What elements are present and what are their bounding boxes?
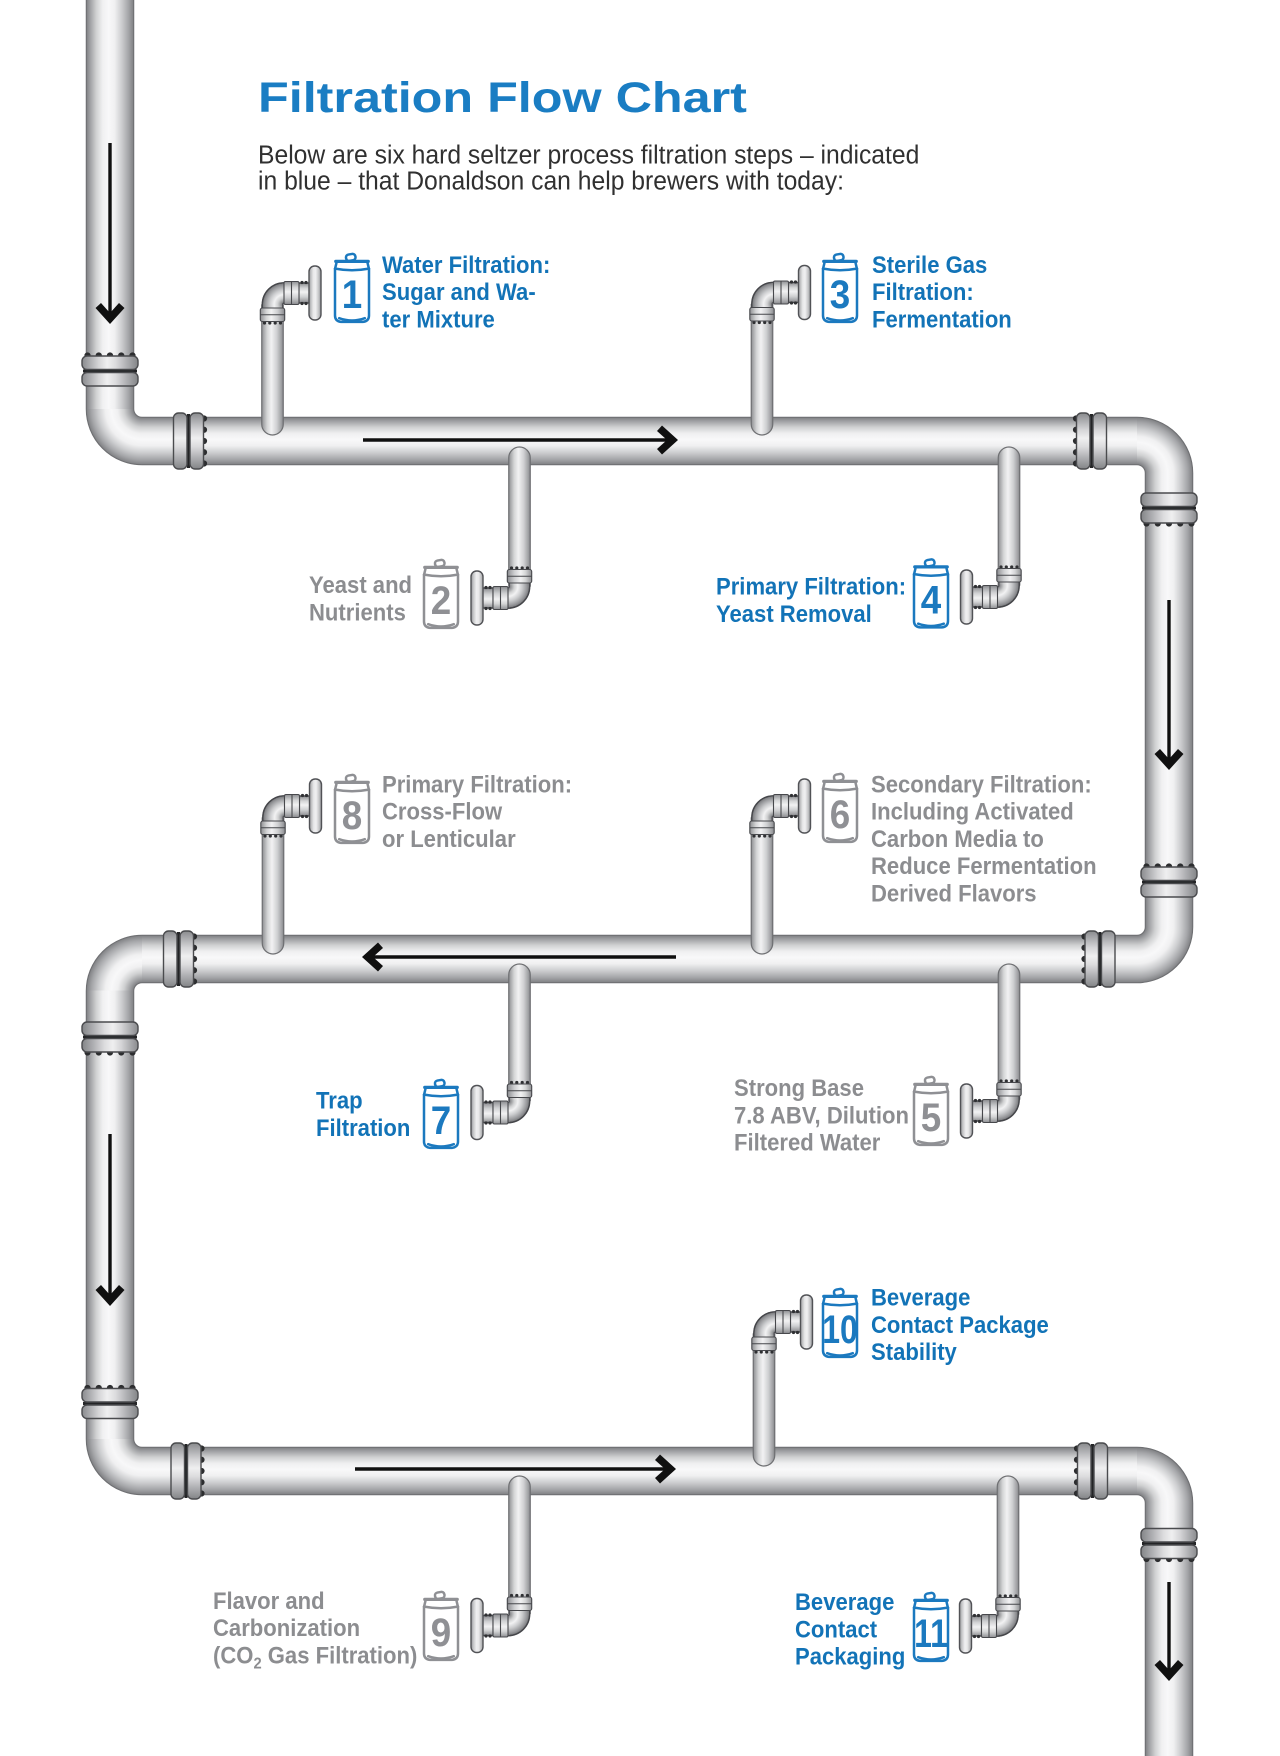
svg-text:3: 3 bbox=[830, 273, 850, 318]
svg-text:8: 8 bbox=[342, 794, 362, 839]
svg-text:Filtered Water: Filtered Water bbox=[734, 1129, 880, 1156]
svg-text:Primary Filtration:: Primary Filtration: bbox=[716, 573, 906, 600]
svg-text:Filtration Flow Chart: Filtration Flow Chart bbox=[258, 73, 747, 121]
svg-text:Packaging: Packaging bbox=[795, 1643, 905, 1670]
svg-text:in blue – that Donaldson can h: in blue – that Donaldson can help brewer… bbox=[258, 167, 844, 196]
svg-text:Sugar and Wa-: Sugar and Wa- bbox=[382, 278, 536, 305]
svg-text:Flavor and: Flavor and bbox=[213, 1587, 325, 1614]
svg-text:4: 4 bbox=[921, 578, 942, 623]
svg-text:Carbon Media to: Carbon Media to bbox=[871, 825, 1044, 852]
svg-text:Nutrients: Nutrients bbox=[309, 598, 406, 625]
svg-text:9: 9 bbox=[431, 1611, 451, 1656]
svg-text:Stability: Stability bbox=[871, 1338, 957, 1365]
svg-text:Including Activated: Including Activated bbox=[871, 798, 1074, 825]
svg-text:Yeast and: Yeast and bbox=[309, 571, 412, 598]
svg-text:Carbonization: Carbonization bbox=[213, 1614, 360, 1641]
svg-text:Filtration: Filtration bbox=[316, 1114, 410, 1141]
svg-text:Reduce Fermentation: Reduce Fermentation bbox=[871, 852, 1097, 879]
svg-text:ter Mixture: ter Mixture bbox=[382, 306, 495, 333]
svg-text:5: 5 bbox=[921, 1096, 941, 1141]
svg-text:Beverage: Beverage bbox=[795, 1588, 895, 1615]
svg-text:Sterile Gas: Sterile Gas bbox=[872, 251, 987, 278]
svg-text:Contact Package: Contact Package bbox=[871, 1311, 1049, 1338]
svg-text:11: 11 bbox=[914, 1611, 948, 1656]
svg-text:10: 10 bbox=[822, 1307, 858, 1352]
svg-text:Fermentation: Fermentation bbox=[872, 306, 1012, 333]
svg-text:Contact: Contact bbox=[795, 1615, 877, 1642]
svg-text:Cross-Flow: Cross-Flow bbox=[382, 798, 502, 825]
svg-text:Secondary Filtration:: Secondary Filtration: bbox=[871, 770, 1092, 797]
svg-text:7: 7 bbox=[431, 1099, 451, 1144]
svg-text:6: 6 bbox=[830, 793, 850, 838]
svg-text:Filtration:: Filtration: bbox=[872, 278, 974, 305]
svg-text:Strong Base: Strong Base bbox=[734, 1074, 864, 1101]
svg-text:2: 2 bbox=[431, 579, 451, 624]
svg-text:Below are six hard seltzer pro: Below are six hard seltzer process filtr… bbox=[258, 141, 919, 170]
svg-text:1: 1 bbox=[342, 273, 362, 318]
svg-text:Trap: Trap bbox=[316, 1087, 363, 1114]
svg-text:7.8 ABV, Dilution: 7.8 ABV, Dilution bbox=[734, 1101, 909, 1128]
svg-text:Primary Filtration:: Primary Filtration: bbox=[382, 770, 572, 797]
svg-text:Yeast Removal: Yeast Removal bbox=[716, 600, 872, 627]
svg-text:Water Filtration:: Water Filtration: bbox=[382, 251, 550, 278]
svg-text:Derived Flavors: Derived Flavors bbox=[871, 880, 1037, 907]
svg-text:or Lenticular: or Lenticular bbox=[382, 825, 516, 852]
svg-text:(CO2 Gas Filtration): (CO2 Gas Filtration) bbox=[213, 1642, 417, 1673]
svg-text:Beverage: Beverage bbox=[871, 1284, 971, 1311]
